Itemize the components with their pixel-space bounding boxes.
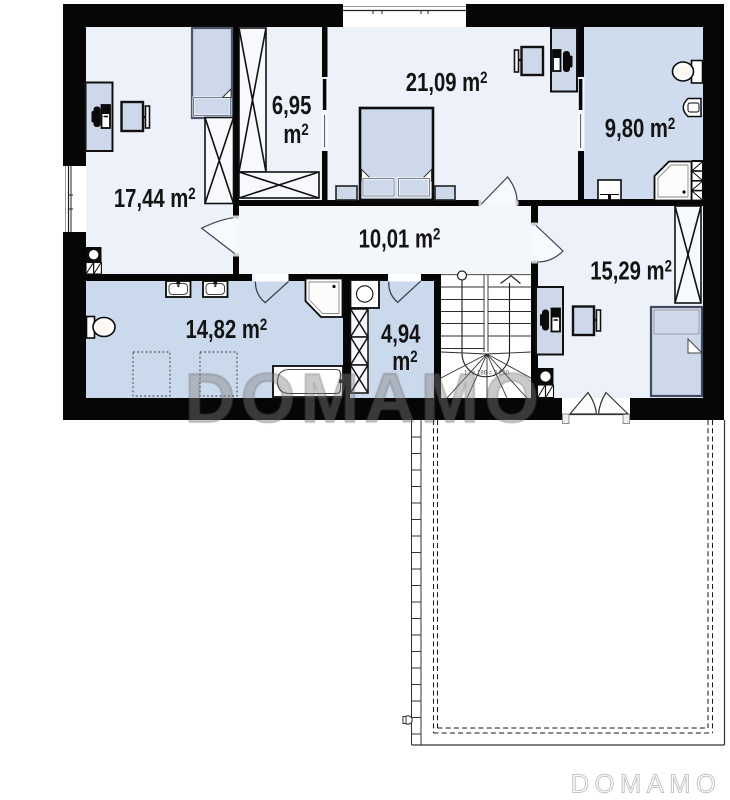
svg-text:14,82 m2: 14,82 m2 bbox=[186, 315, 268, 344]
svg-text:DOMAMO: DOMAMO bbox=[185, 359, 545, 437]
svg-text:21,09 m2: 21,09 m2 bbox=[406, 67, 488, 96]
svg-text:15,29 m2: 15,29 m2 bbox=[590, 256, 672, 285]
svg-text:4,94: 4,94 bbox=[381, 319, 420, 348]
svg-text:9,80 m2: 9,80 m2 bbox=[605, 114, 675, 143]
svg-text:DOMAMO: DOMAMO bbox=[571, 771, 722, 799]
svg-text:6,95: 6,95 bbox=[272, 91, 311, 120]
svg-text:10,01 m2: 10,01 m2 bbox=[359, 224, 441, 253]
svg-text:17,44 m2: 17,44 m2 bbox=[114, 184, 196, 213]
